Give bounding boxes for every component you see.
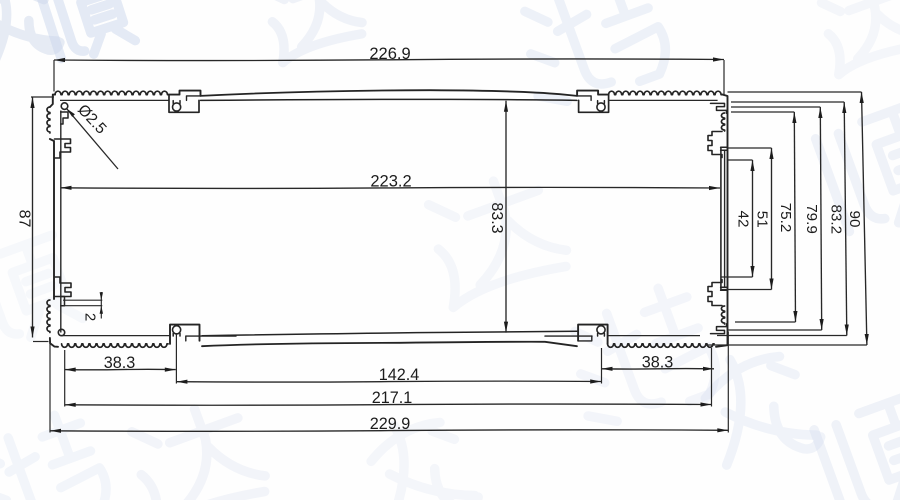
svg-text:75.2: 75.2	[777, 203, 794, 233]
svg-text:87: 87	[16, 210, 33, 228]
svg-text:38.3: 38.3	[104, 354, 136, 372]
svg-text:38.3: 38.3	[642, 353, 674, 371]
svg-text:90: 90	[846, 211, 863, 228]
svg-text:226.9: 226.9	[369, 45, 410, 63]
svg-text:42: 42	[735, 211, 752, 228]
svg-text:79.9: 79.9	[803, 204, 820, 234]
svg-text:2: 2	[82, 313, 99, 321]
svg-text:229.9: 229.9	[370, 415, 411, 433]
svg-text:83.3: 83.3	[488, 202, 505, 233]
svg-text:223.2: 223.2	[370, 172, 411, 190]
svg-text:217.1: 217.1	[372, 389, 413, 407]
svg-text:83.2: 83.2	[828, 204, 845, 234]
svg-text:142.4: 142.4	[379, 366, 420, 384]
svg-text:51: 51	[754, 211, 771, 228]
